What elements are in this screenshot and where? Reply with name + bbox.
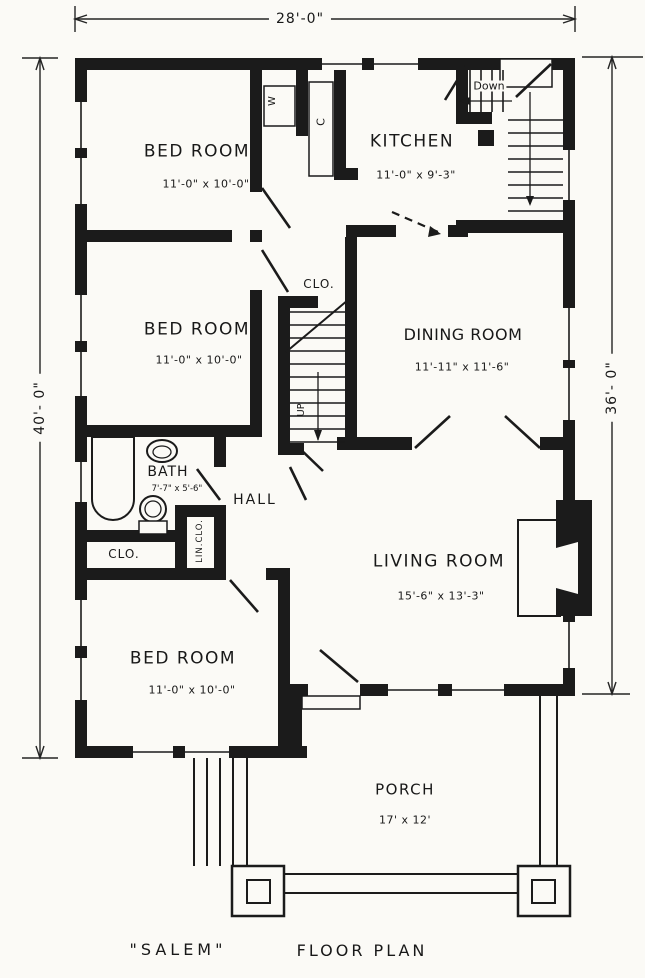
stair-down-label: Down [471,81,506,92]
closet-upper-label: CLO. [303,278,334,290]
bathtub [92,437,134,520]
floorplan-drawing [0,0,645,978]
dimension-right-label: 36'- 0" [605,354,619,422]
stair-arrow-head [526,196,534,206]
sink-basin [145,501,161,517]
room-label-porch: PORCH [375,783,435,798]
swing-door-arrow [428,226,441,237]
room-label-hall: HALL [233,493,277,507]
c-closet-label: C [316,118,327,126]
plan-title-type: FLOOR PLAN [297,943,428,959]
room-label-bedroom3: BED ROOM [130,651,236,668]
room-size-porch: 17' x 12' [379,815,431,826]
room-label-dining: DINING ROOM [404,327,523,343]
room-size-dining: 11'-11" x 11'-6" [415,362,510,373]
room-size-living: 15'-6" x 13'-3" [397,591,484,602]
porch-pillar-right [518,866,570,916]
toilet-bowl [153,446,171,458]
floorplan-page: 28'-0" 40'- 0" 36'- 0" BED ROOM 11'-0" x… [0,0,645,978]
room-size-bedroom3: 11'-0" x 10'-0" [148,685,235,696]
room-size-bedroom2: 11'-0" x 10'-0" [155,355,242,366]
room-label-bedroom1: BED ROOM [144,144,250,161]
back-landing [500,59,552,87]
room-size-kitchen: 11'-0" x 9'-3" [376,170,456,181]
stair-up-label: UP [297,403,307,416]
dimension-width-label: 28'-0" [269,12,331,26]
room-size-bedroom1: 11'-0" x 10'-0" [162,179,249,190]
dimension-left-label: 40'- 0" [33,374,47,442]
room-label-kitchen: KITCHEN [370,134,454,151]
up-arrow-head [314,430,322,441]
wardrobe-closet-label: W [268,96,278,106]
main-stairs [286,300,348,442]
porch-pillar-left [232,866,284,916]
closet-lower-label: CLO. [108,548,139,560]
room-size-bath: 7'-7" x 5'-6" [152,485,203,494]
plan-title-name: "SALEM" [130,942,227,958]
porch-structure [194,696,570,916]
sink-base [139,521,167,534]
room-label-living: LIVING ROOM [373,554,505,571]
room-label-bedroom2: BED ROOM [144,322,250,339]
fireplace [518,500,592,616]
linen-closet-label: LIN.CLO. [196,519,205,563]
room-label-bath: BATH [147,465,188,479]
